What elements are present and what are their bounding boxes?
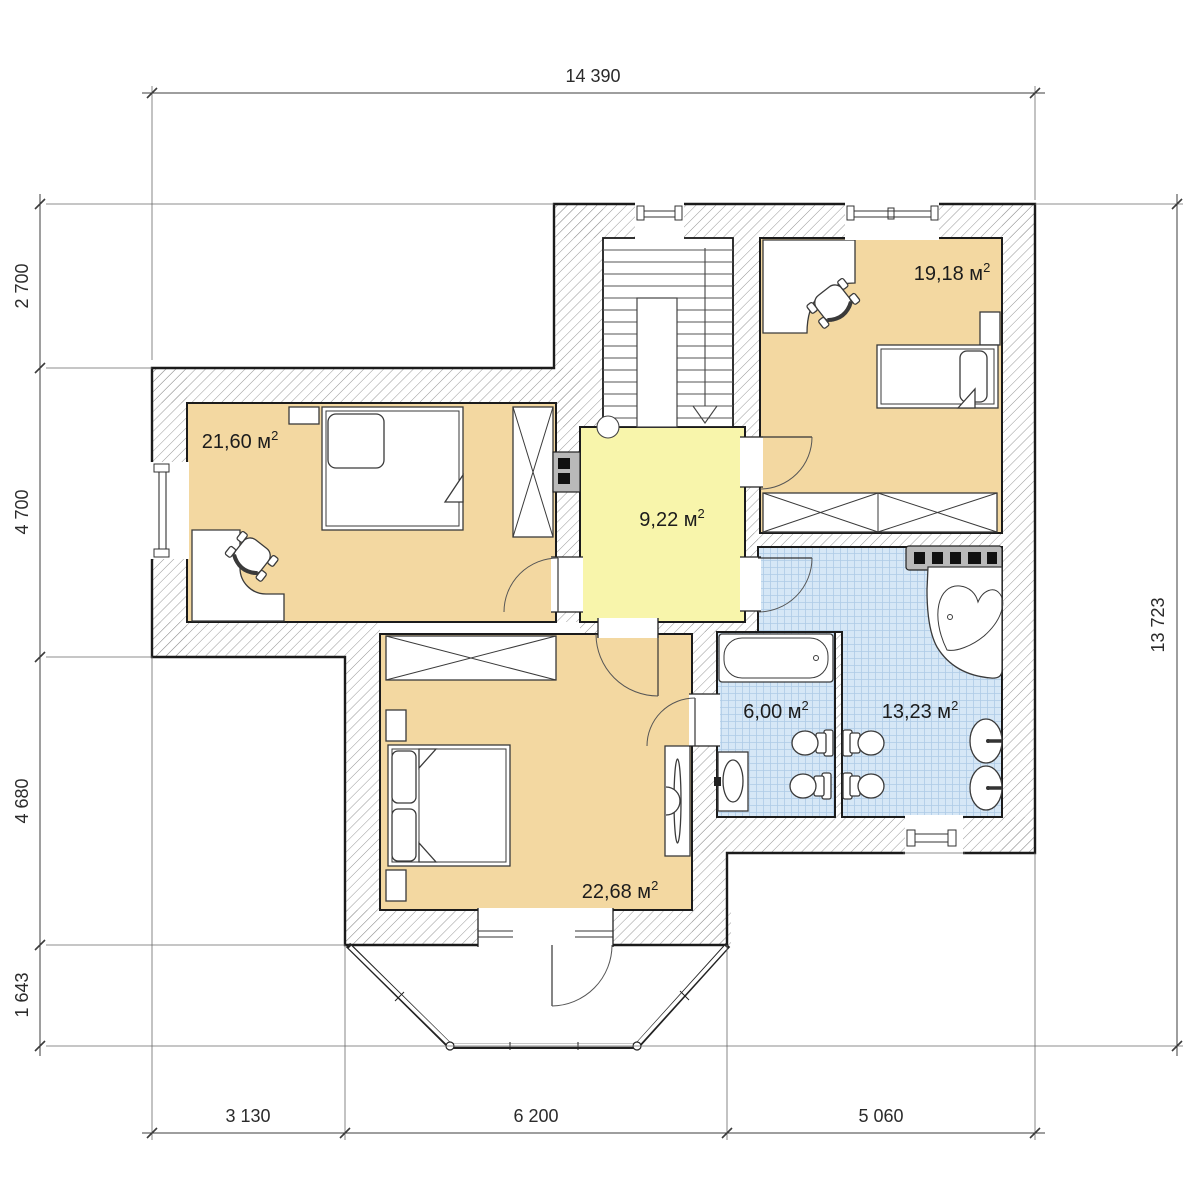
flue-icon — [558, 458, 570, 469]
room-bath-small-area-label: 6,00 м2 — [743, 698, 808, 723]
sink-icon — [714, 752, 748, 811]
wall-right — [1002, 204, 1035, 853]
bay-window — [348, 945, 728, 1050]
stairs-icon — [597, 238, 733, 438]
dim-label-left-1: 2 700 — [12, 263, 32, 308]
washbasin-icon — [970, 719, 1002, 763]
wall-master-bottom-left — [345, 910, 478, 945]
door-master-bay — [478, 908, 613, 1006]
dim-label-bottom-3: 5 060 — [858, 1106, 903, 1126]
window-bath-large-bottom — [903, 815, 965, 855]
dim-label-bottom-2: 6 200 — [513, 1106, 558, 1126]
floor-plan-canvas: 14 390 2 700 4 700 4 680 1 643 3 130 6 2… — [0, 0, 1200, 1200]
room-bedroom1-area-label: 21,60 м2 — [202, 428, 279, 453]
room-master-area-label: 22,68 м2 — [582, 878, 659, 903]
washbasin-icon — [970, 766, 1002, 810]
nightstand-icon — [980, 312, 1000, 345]
bidet-icon — [790, 773, 831, 799]
dim-label-left-2: 4 700 — [12, 489, 32, 534]
room-bath-large-area-label: 13,23 м2 — [882, 698, 959, 723]
pillow-icon — [392, 751, 416, 803]
tap-icon — [714, 777, 721, 786]
wardrobe-icon — [513, 407, 553, 537]
toilet-icon — [792, 730, 833, 756]
dim-label-top: 14 390 — [565, 66, 620, 86]
wardrobe-icon — [763, 493, 997, 532]
single-bed-icon — [322, 407, 463, 530]
window-stairwell-top — [635, 202, 684, 240]
wall-bedroom1-bottom — [152, 622, 345, 657]
wall-top — [554, 204, 1035, 238]
room-bedroom2-area-label: 19,18 м2 — [914, 260, 991, 285]
wall-bedroom1-top — [152, 368, 580, 403]
dresser-mirror-icon — [665, 746, 690, 856]
wall-master-left — [345, 622, 380, 945]
nightstand-icon — [289, 407, 319, 424]
dim-label-right: 13 723 — [1148, 597, 1168, 652]
double-bed-icon — [388, 745, 510, 866]
wall-stair-right — [733, 238, 760, 427]
bidet-icon — [843, 773, 884, 799]
wall-bedroom2-bath — [745, 533, 1002, 547]
dim-label-bottom-1: 3 130 — [225, 1106, 270, 1126]
stair-stringer — [637, 298, 677, 427]
toilet-icon — [843, 730, 884, 756]
wall-bath-bottom — [692, 817, 1035, 853]
wardrobe-icon — [386, 636, 556, 680]
flue-icon — [558, 473, 570, 484]
wall-bath-divider — [835, 622, 842, 817]
single-bed-icon — [877, 345, 998, 408]
floor-plan-page: 14 390 2 700 4 700 4 680 1 643 3 130 6 2… — [0, 0, 1200, 1200]
window-bedroom1-left — [150, 462, 189, 559]
bathtub-icon — [719, 634, 833, 682]
stair-column-icon — [597, 416, 619, 438]
dim-label-left-3: 4 680 — [12, 778, 32, 823]
nightstand-icon — [386, 710, 406, 741]
dim-label-left-4: 1 643 — [12, 972, 32, 1017]
pillow-icon — [392, 809, 416, 861]
room-hall-area-label: 9,22 м2 — [639, 506, 704, 531]
nightstand-icon — [386, 870, 406, 901]
wall-master-bottom-right — [613, 910, 731, 945]
window-bedroom2-top — [845, 202, 939, 240]
pillow-icon — [328, 414, 384, 468]
